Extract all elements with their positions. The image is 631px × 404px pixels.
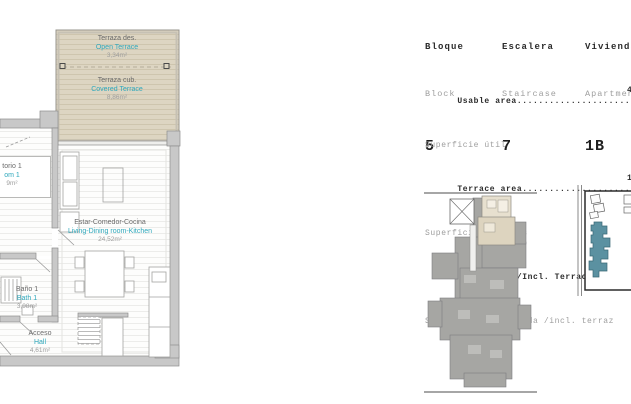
bedroom-name-es: torio 1 [0,163,50,172]
terrace-window [58,141,167,145]
label-bedroom: torio 1 om 1 9m² [0,157,50,189]
block-label-es: Bloque [425,42,464,53]
key-plan-minimap [420,185,540,404]
site-plan-minimap [575,183,631,298]
usable-area-value: 4 [627,85,631,96]
key-plan-highlight [478,196,515,245]
usable-area-label: Usable area [457,97,516,106]
floor-plan-drawing [0,0,200,404]
staircase-label-es: Escalera [502,42,557,53]
plan-sheet: Terraza des. Open Terrace 3,34m² Terraza… [0,0,631,404]
bedroom-name-en: om 1 [0,172,50,181]
usable-area-dots: ........................ [517,97,631,106]
usable-area-sublabel: Superficie útil [425,140,631,151]
apartment-label-es: Vivienda [585,42,631,53]
key-plan-lightwell [450,199,474,224]
terrace-area [56,30,179,143]
usable-area-row: Usable area........................4 [425,85,631,118]
bedroom-area: 9m² [0,180,50,189]
bedroom-label-box: torio 1 om 1 9m² [0,156,51,198]
